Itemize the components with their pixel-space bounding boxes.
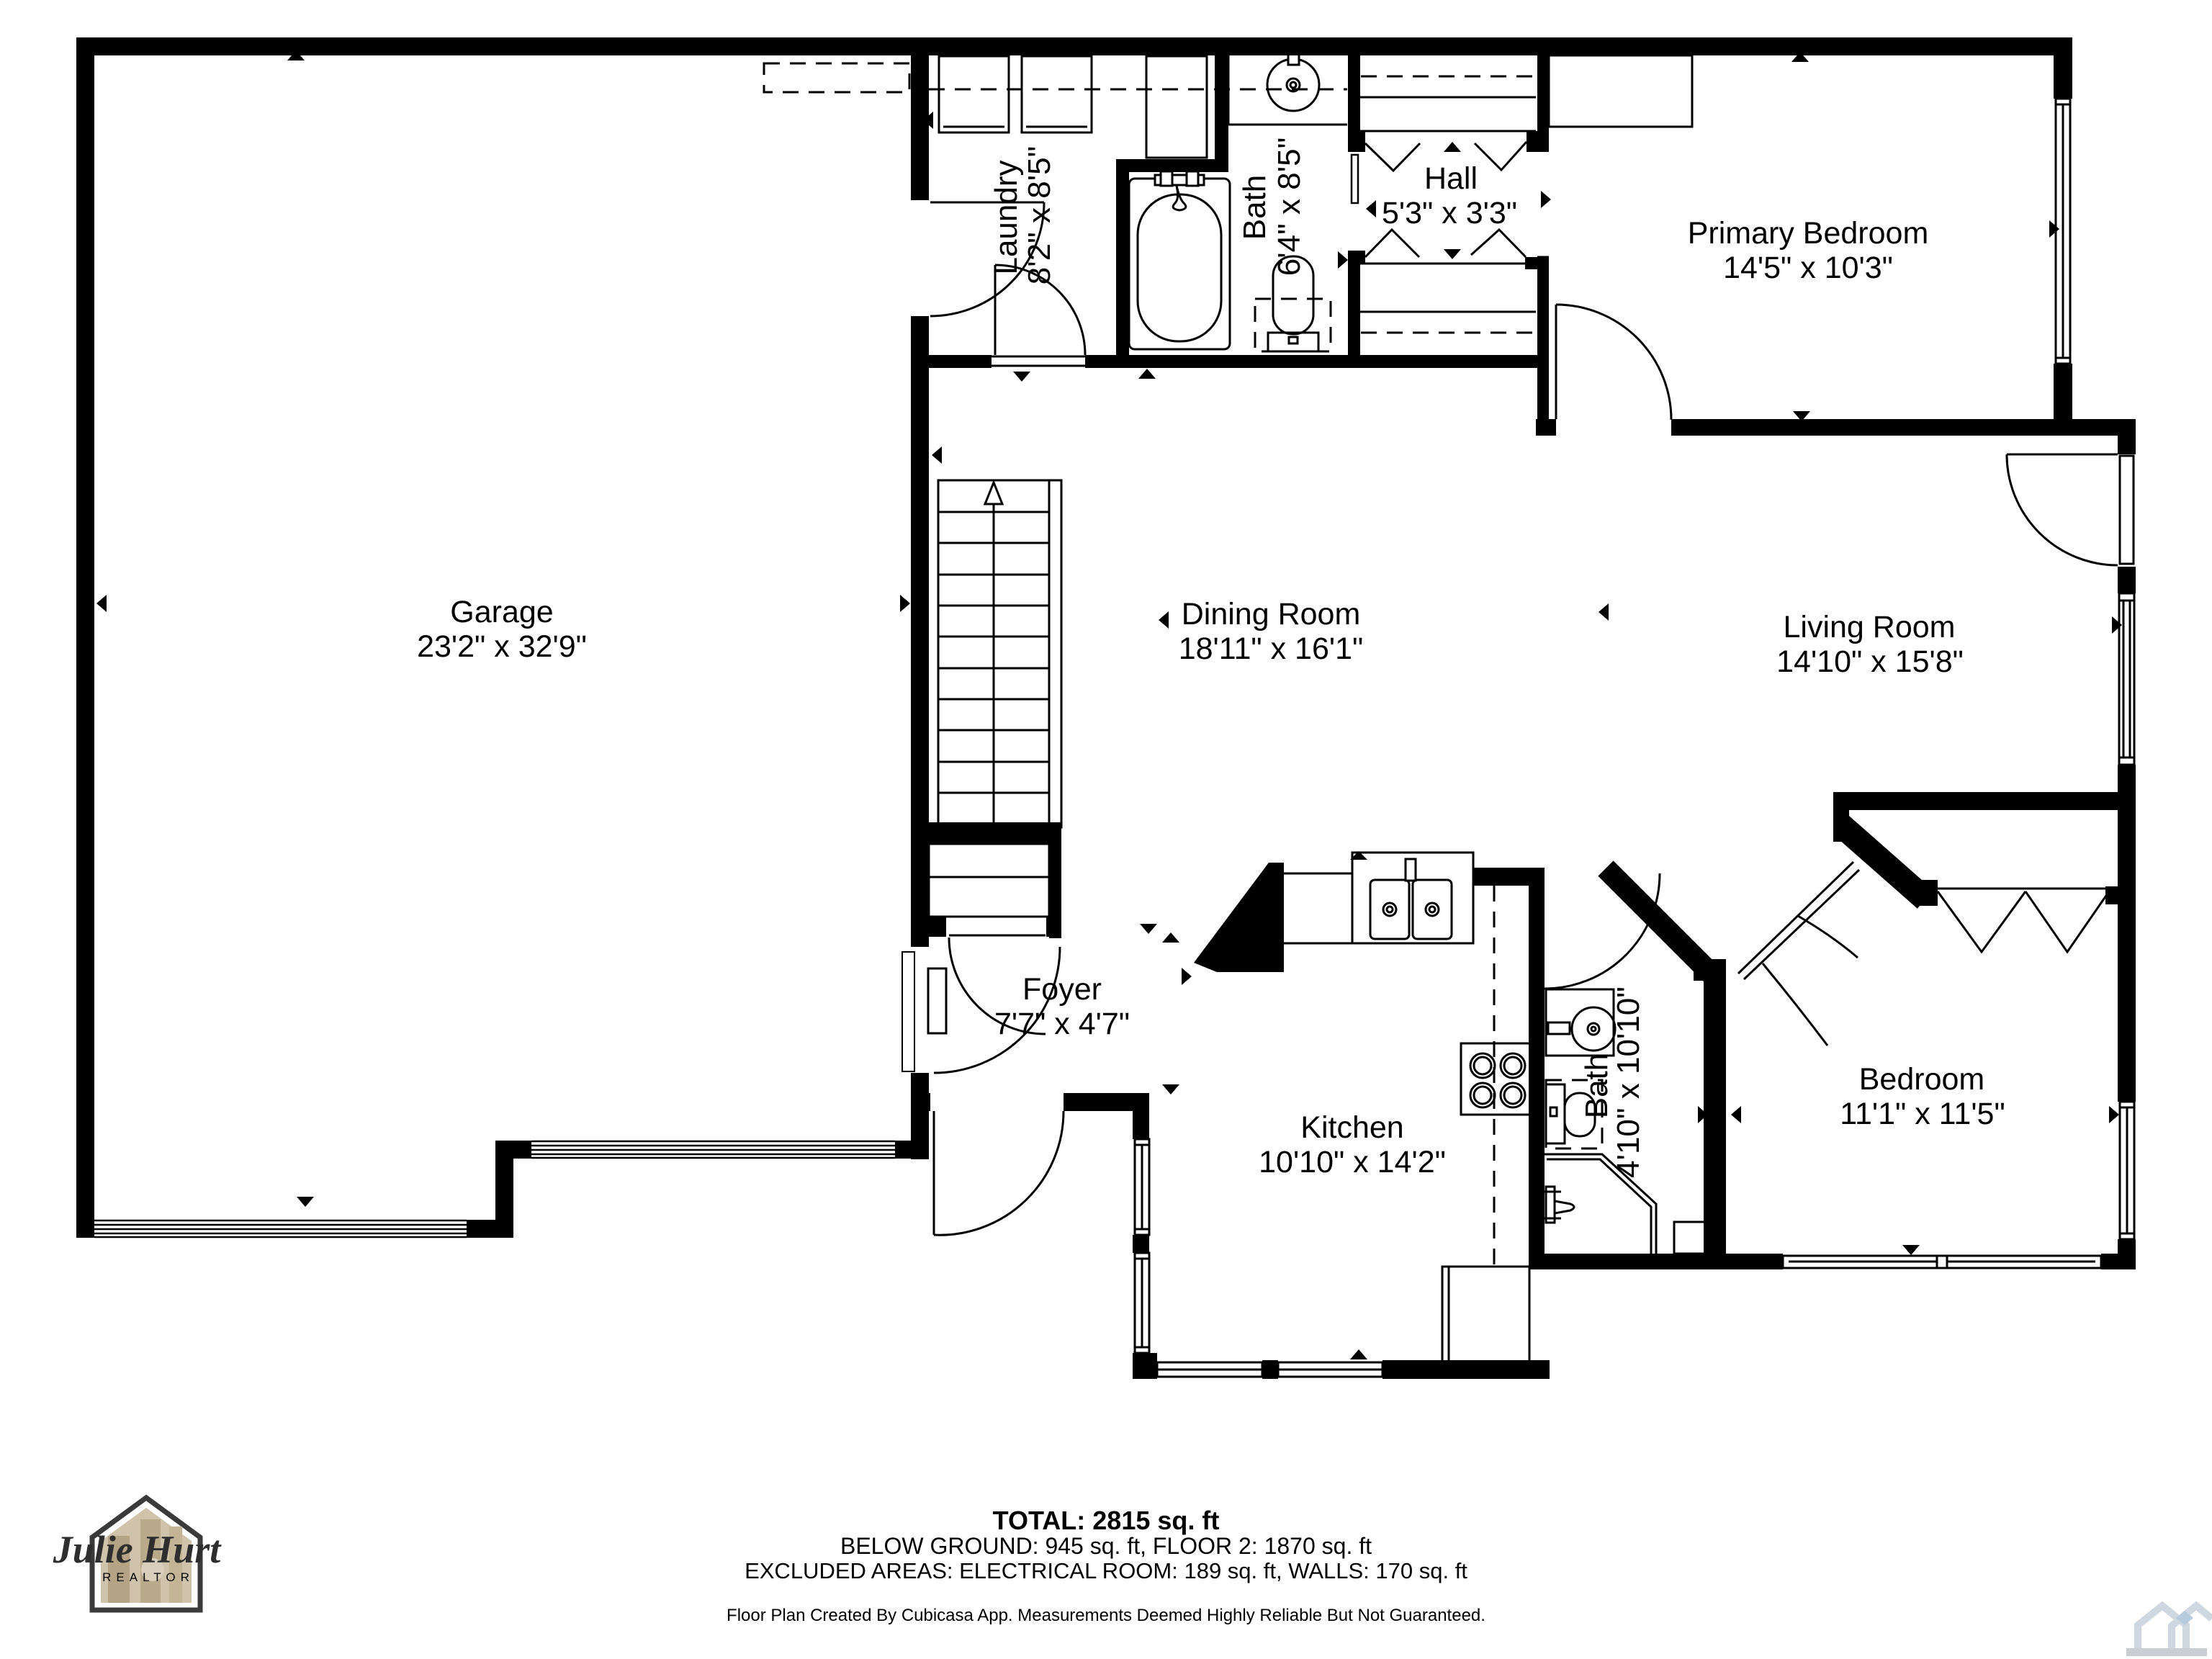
svg-text:Hall: Hall	[1424, 161, 1478, 196]
svg-text:6'4" x 8'5": 6'4" x 8'5"	[1272, 138, 1307, 276]
svg-text:Floor Plan Created By Cubicasa: Floor Plan Created By Cubicasa App. Meas…	[727, 1606, 1485, 1625]
svg-text:Living Room: Living Room	[1784, 610, 1956, 644]
svg-text:Garage: Garage	[450, 595, 553, 629]
svg-text:4'10" x 10'10": 4'10" x 10'10"	[1611, 986, 1646, 1178]
svg-text:11'1" x 11'5": 11'1" x 11'5"	[1840, 1097, 2005, 1131]
svg-text:14'10" x 15'8": 14'10" x 15'8"	[1776, 644, 1964, 679]
svg-text:Julie Hurt: Julie Hurt	[53, 1528, 222, 1571]
svg-text:TOTAL: 2815 sq. ft: TOTAL: 2815 sq. ft	[993, 1506, 1220, 1535]
svg-text:BELOW GROUND: 945 sq. ft, FLOO: BELOW GROUND: 945 sq. ft, FLOOR 2: 1870 …	[840, 1533, 1372, 1559]
svg-text:10'10" x 14'2": 10'10" x 14'2"	[1259, 1145, 1446, 1179]
svg-text:Bath: Bath	[1579, 1053, 1614, 1119]
svg-text:Laundry: Laundry	[989, 160, 1024, 274]
svg-text:Foyer: Foyer	[1022, 972, 1102, 1007]
svg-text:5'3" x 3'3": 5'3" x 3'3"	[1382, 196, 1517, 230]
svg-text:REALTOR: REALTOR	[102, 1570, 194, 1584]
svg-text:8'2" x 8'5": 8'2" x 8'5"	[1022, 146, 1057, 284]
svg-text:Bedroom: Bedroom	[1859, 1062, 1984, 1097]
svg-text:18'11" x 16'1": 18'11" x 16'1"	[1179, 631, 1364, 666]
svg-text:Bath: Bath	[1237, 175, 1272, 240]
svg-text:23'2" x 32'9": 23'2" x 32'9"	[417, 629, 587, 664]
svg-text:EXCLUDED AREAS: ELECTRICAL ROO: EXCLUDED AREAS: ELECTRICAL ROOM: 189 sq.…	[745, 1558, 1467, 1583]
svg-text:Primary Bedroom: Primary Bedroom	[1688, 216, 1929, 251]
svg-text:7'7" x 4'7": 7'7" x 4'7"	[994, 1007, 1130, 1041]
svg-text:Kitchen: Kitchen	[1300, 1110, 1403, 1145]
svg-text:14'5" x 10'3": 14'5" x 10'3"	[1723, 251, 1893, 285]
svg-text:Dining Room: Dining Room	[1182, 597, 1361, 631]
